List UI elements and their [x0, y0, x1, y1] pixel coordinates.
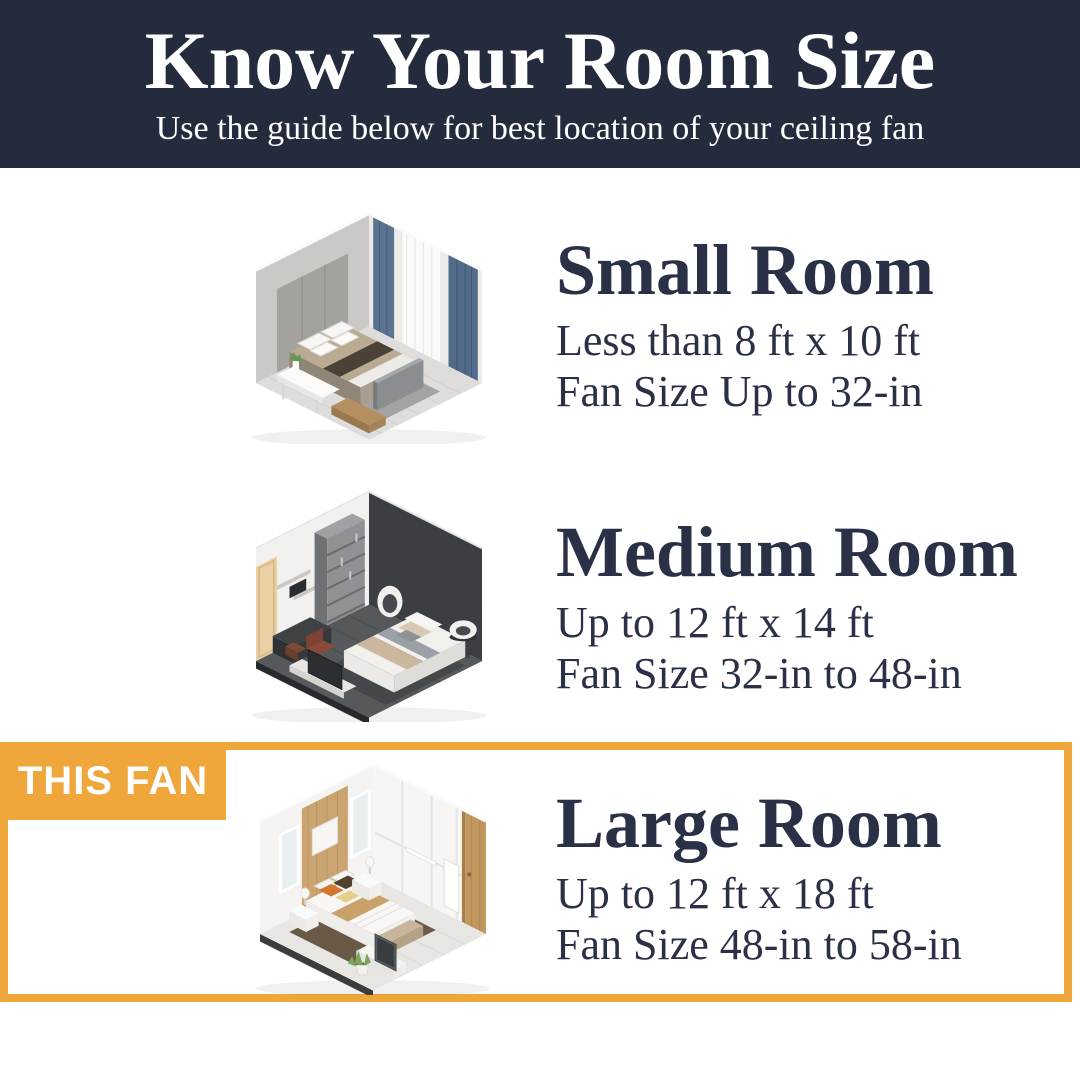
small-room-text: Small Room Less than 8 ft x 10 ft Fan Si… — [556, 236, 934, 418]
small-room-fan-size: Fan Size Up to 32-in — [556, 367, 934, 418]
medium-room-isometric-icon — [233, 481, 505, 722]
small-room-title: Small Room — [556, 236, 934, 304]
header-banner: Know Your Room Size Use the guide below … — [0, 0, 1080, 168]
medium-room-fan-size: Fan Size 32-in to 48-in — [556, 649, 1018, 700]
small-room-isometric-icon — [233, 203, 505, 444]
large-room-text: Large Room Up to 12 ft x 18 ft Fan Size … — [556, 789, 962, 971]
large-room-isometric-icon — [237, 754, 509, 995]
page-subtitle: Use the guide below for best location of… — [156, 110, 925, 147]
infographic-canvas: Know Your Room Size Use the guide below … — [0, 0, 1080, 1080]
this-fan-badge: THIS FAN — [0, 742, 226, 820]
large-room-title: Large Room — [556, 789, 962, 857]
medium-room-title: Medium Room — [556, 518, 1018, 586]
large-room-size-range: Up to 12 ft x 18 ft — [556, 869, 962, 920]
page-title: Know Your Room Size — [145, 20, 935, 102]
this-fan-badge-label: THIS FAN — [18, 759, 208, 804]
medium-room-text: Medium Room Up to 12 ft x 14 ft Fan Size… — [556, 518, 1018, 700]
small-room-illustration — [233, 203, 505, 444]
medium-room-size-range: Up to 12 ft x 14 ft — [556, 598, 1018, 649]
small-room-size-range: Less than 8 ft x 10 ft — [556, 316, 934, 367]
medium-room-illustration — [233, 481, 505, 722]
large-room-illustration — [237, 754, 509, 995]
large-room-fan-size: Fan Size 48-in to 58-in — [556, 920, 962, 971]
